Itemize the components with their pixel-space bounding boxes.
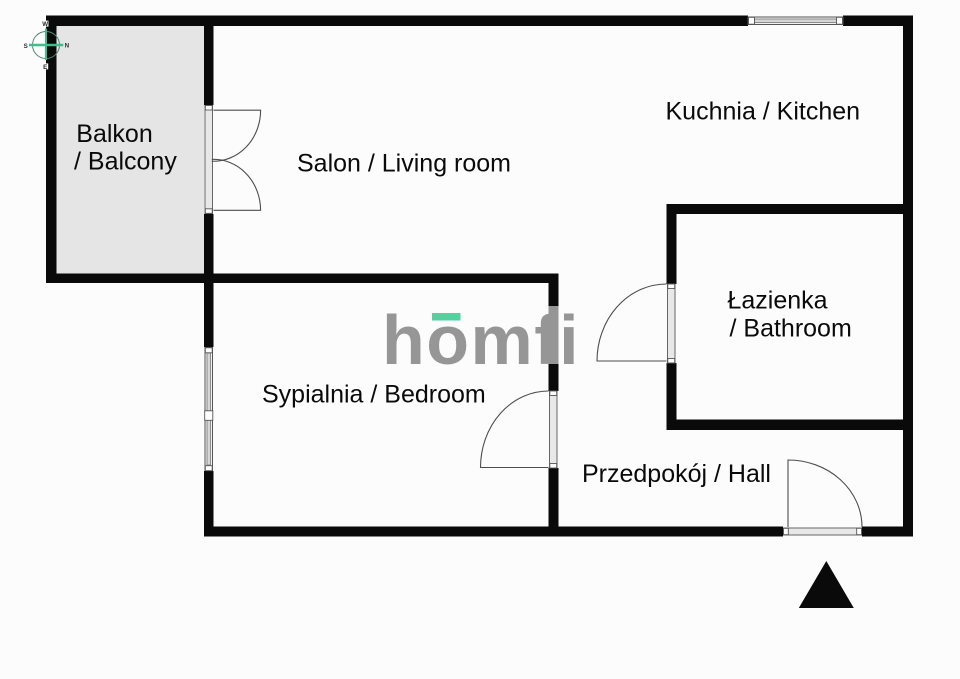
- svg-text:W: W: [42, 21, 48, 28]
- svg-text:/ Bathroom: / Bathroom: [730, 314, 852, 342]
- svg-text:E: E: [43, 64, 47, 71]
- svg-text:Kuchnia / Kitchen: Kuchnia / Kitchen: [666, 98, 861, 126]
- svg-text:S: S: [24, 43, 28, 50]
- svg-text:Salon / Living room: Salon / Living room: [297, 149, 511, 177]
- svg-text:Balkon: Balkon: [76, 120, 152, 148]
- svg-text:/ Balcony: / Balcony: [74, 147, 177, 175]
- svg-text:Sypialnia / Bedroom: Sypialnia / Bedroom: [262, 381, 486, 409]
- svg-text:N: N: [65, 43, 70, 50]
- svg-text:Przedpokój / Hall: Przedpokój / Hall: [582, 460, 771, 488]
- svg-text:Łazienka: Łazienka: [728, 287, 828, 315]
- svg-text:homfi: homfi: [382, 301, 580, 379]
